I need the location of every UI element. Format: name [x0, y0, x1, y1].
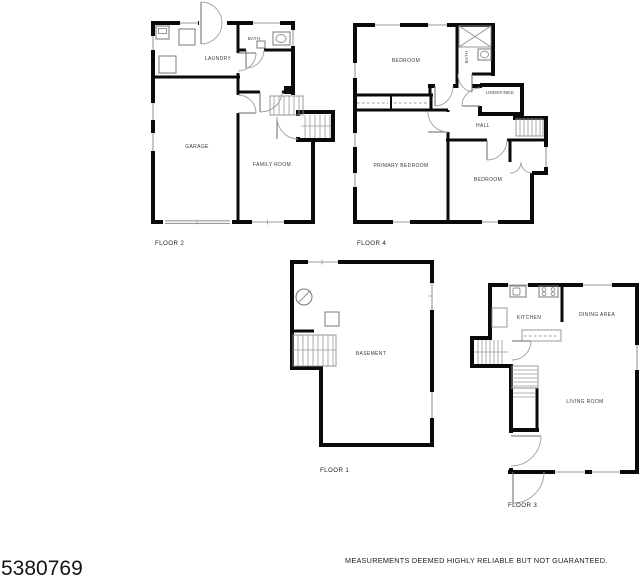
floor4-bedroom-top-label: BEDROOM [392, 58, 420, 64]
floor1-plan: BASEMENT FLOOR 1 [290, 260, 434, 475]
mls-number: 5380769 [1, 557, 83, 581]
floor3-plan: KITCHEN DINING AREA LIVING ROOM FLOOR 3 [470, 283, 639, 509]
floor4-window-lines [355, 25, 546, 222]
floor3-window-lines [508, 285, 637, 472]
floor4-window-gaps [355, 25, 546, 222]
water-heater-icon [296, 289, 312, 305]
laundry-sink-icon [156, 26, 169, 39]
furnace-icon [325, 312, 339, 326]
floor3-stairs [512, 366, 538, 388]
floorplan-canvas: LAUNDRY BATH GARAGE FAMILY ROOM FLOOR 2 [0, 0, 640, 581]
floor2-bath-label: BATH [248, 36, 260, 41]
floor3-living-room-label: LIVING ROOM [566, 399, 603, 405]
floor2-laundry-label: LAUNDRY [205, 56, 232, 62]
floor2-title: FLOOR 2 [155, 240, 184, 247]
floor1-title: FLOOR 1 [320, 467, 349, 474]
floor2-landing-stairs [301, 115, 331, 138]
floor1-basement-label: BASEMENT [356, 351, 386, 357]
floor1-stairs [293, 335, 336, 366]
washer-icon [179, 29, 195, 45]
dryer-icon [159, 56, 176, 73]
floor4-interior-walls [355, 23, 548, 224]
floor4-undefined-label: UNDEFINED [486, 90, 514, 95]
laundry-sink-basin [159, 29, 167, 34]
kitchen-sink-icon [510, 286, 526, 297]
floor2-family-room-label: FAMILY ROOM [253, 162, 291, 168]
floor2-window-lines [153, 23, 293, 222]
floor3-doors [511, 341, 544, 503]
floor1-window-lines [308, 262, 432, 418]
floor4-bath-label: BATH [464, 51, 469, 63]
floor2-interior-walls [153, 23, 294, 222]
fridge-icon [492, 308, 507, 327]
floor3-window-gaps [508, 285, 637, 472]
floor4-plan: BEDROOM BATH UNDEFINED HALL PRIMARY BEDR… [353, 23, 548, 247]
floor2-window-gaps [153, 23, 293, 222]
disclaimer-text: MEASUREMENTS DEEMED HIGHLY RELIABLE BUT … [345, 556, 608, 565]
floor3-interior-walls [537, 283, 562, 430]
floor2-plan: LAUNDRY BATH GARAGE FAMILY ROOM FLOOR 2 [151, 2, 335, 247]
kitchen-counter [522, 330, 561, 341]
floor4-primary-bedroom-label: PRIMARY BEDROOM [373, 163, 428, 169]
bath-vanity-icon [273, 32, 290, 45]
floor4-outer-walls [353, 23, 548, 224]
stove-icon [539, 286, 558, 297]
floor3-closet [511, 388, 537, 397]
floor4-stairs [516, 119, 543, 136]
floor3-dining-area-label: DINING AREA [579, 312, 615, 318]
toilet-icon [257, 41, 265, 48]
floor3-landing-stairs [474, 340, 508, 364]
floor1-window-ticks [322, 260, 432, 297]
floor3-title: FLOOR 3 [508, 502, 537, 509]
floor4-title: FLOOR 4 [357, 240, 386, 247]
floor4-hall-label: HALL [476, 123, 490, 129]
floor4-bath-vanity-icon [478, 49, 491, 60]
floor3-kitchen-label: KITCHEN [517, 315, 541, 321]
floor4-bedroom-right-label: BEDROOM [474, 177, 502, 183]
floorplan-drawing: LAUNDRY BATH GARAGE FAMILY ROOM FLOOR 2 [0, 0, 640, 581]
floor2-garage-label: GARAGE [185, 144, 209, 150]
floor1-window-gaps [308, 262, 432, 418]
shower-x-icon [459, 26, 491, 47]
